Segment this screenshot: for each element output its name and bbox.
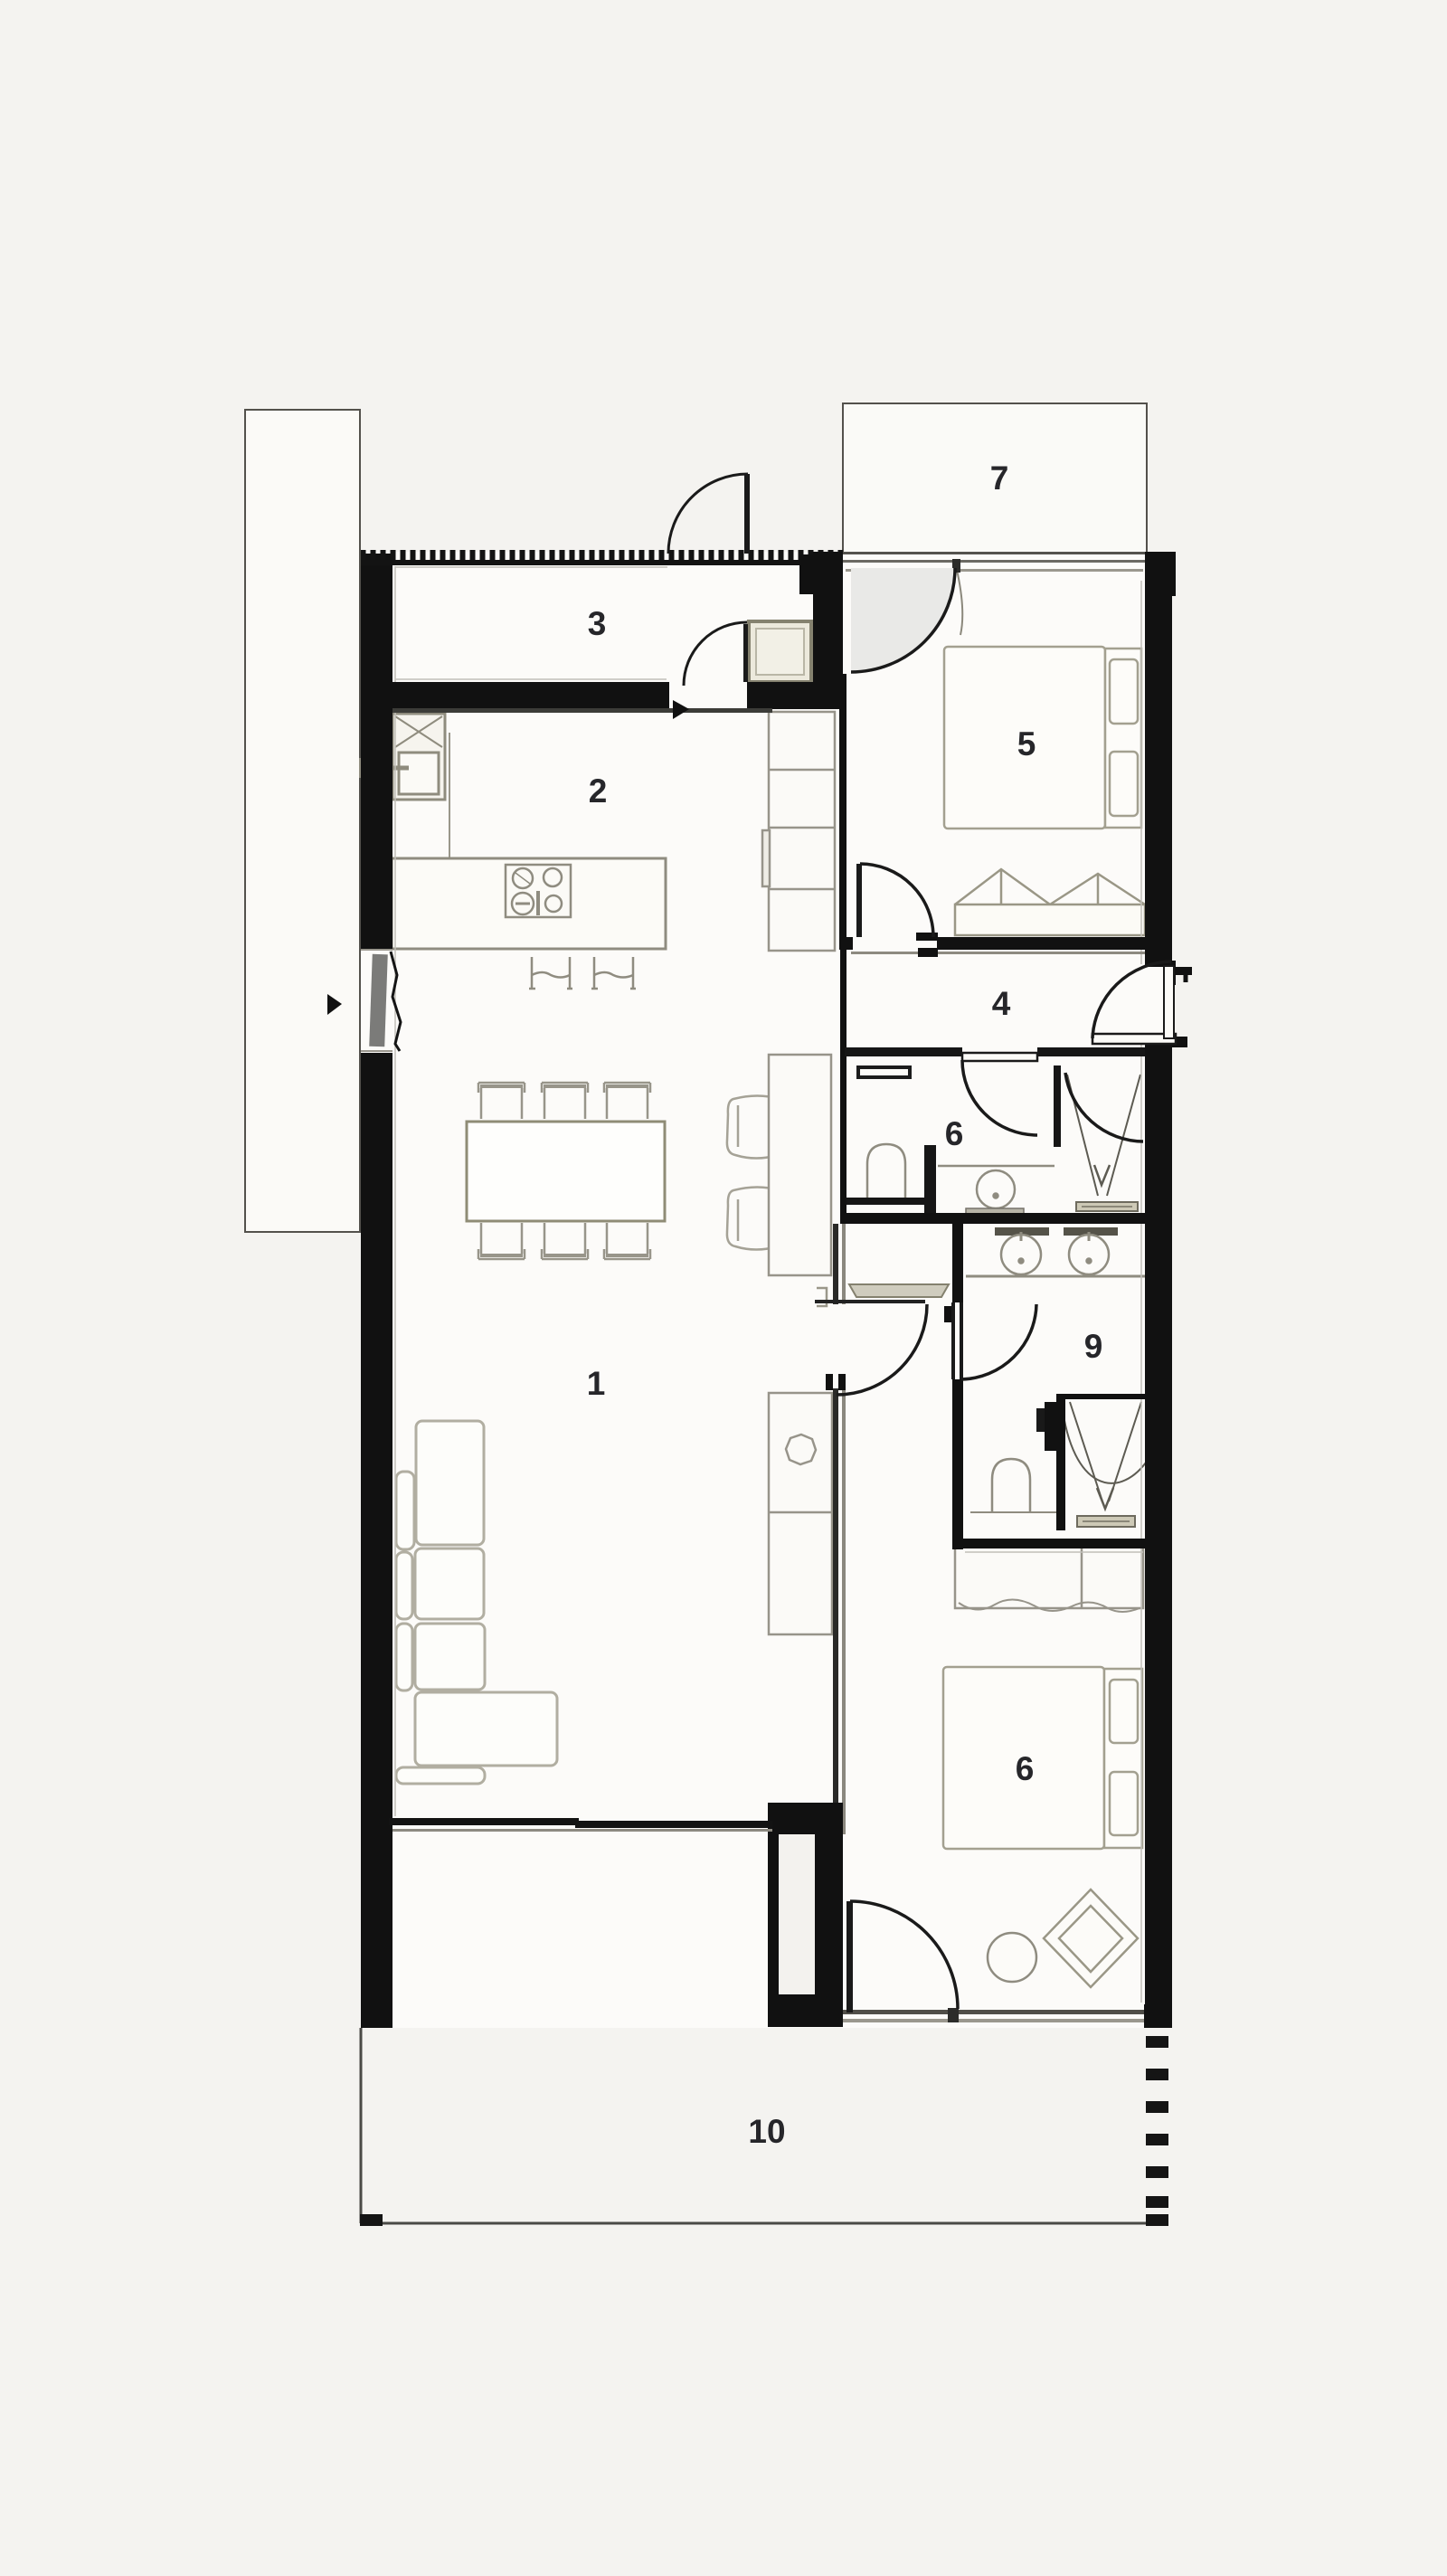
svg-text:9: 9 — [1084, 1328, 1103, 1365]
svg-text:6: 6 — [1016, 1750, 1035, 1787]
svg-text:1: 1 — [587, 1365, 606, 1402]
svg-text:7: 7 — [990, 459, 1009, 497]
svg-text:2: 2 — [589, 772, 608, 810]
svg-text:6: 6 — [945, 1115, 964, 1152]
svg-text:5: 5 — [1017, 725, 1036, 762]
svg-text:4: 4 — [992, 985, 1011, 1022]
svg-text:10: 10 — [748, 2113, 785, 2150]
svg-text:3: 3 — [588, 605, 607, 642]
